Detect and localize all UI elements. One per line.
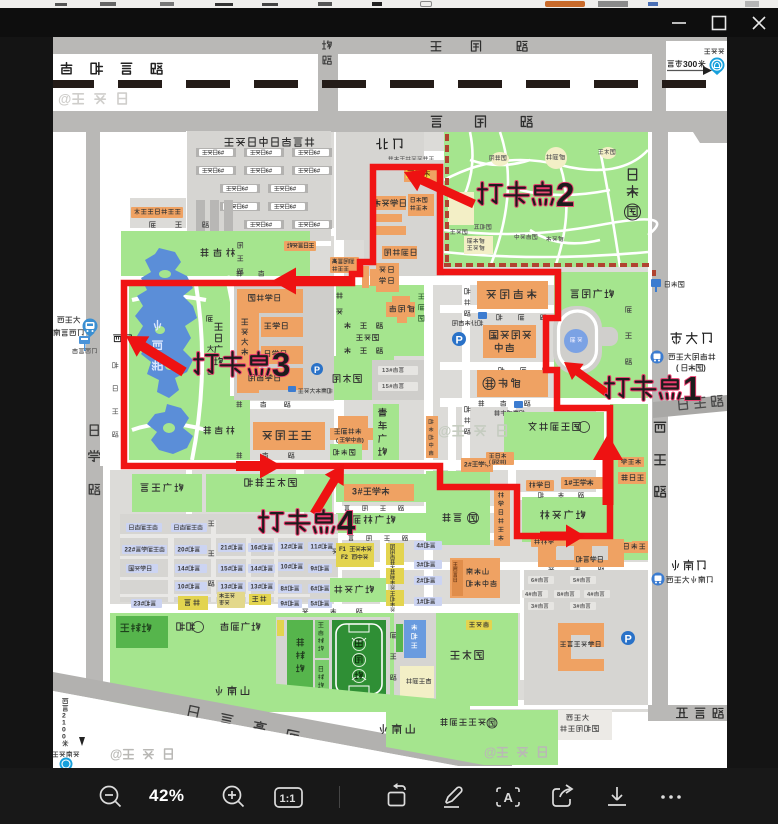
- svg-text:@: @: [58, 91, 71, 106]
- svg-text:2: 2: [497, 460, 500, 466]
- svg-text:@: @: [438, 423, 451, 438]
- svg-text:4: 4: [337, 504, 356, 541]
- svg-text:0: 0: [62, 727, 66, 734]
- svg-text:#: #: [420, 599, 424, 606]
- svg-text:3: 3: [272, 346, 290, 383]
- svg-text:#: #: [420, 543, 424, 550]
- svg-text:2: 2: [62, 713, 66, 720]
- svg-text:A: A: [504, 790, 514, 805]
- svg-text:#: #: [420, 578, 424, 585]
- svg-text:0: 0: [62, 734, 66, 741]
- svg-text:#: #: [314, 586, 318, 593]
- svg-text:1: 1: [62, 720, 66, 727]
- svg-text:P: P: [314, 365, 320, 375]
- svg-text:1: 1: [342, 546, 346, 553]
- svg-text:#: #: [314, 601, 318, 608]
- svg-text:#: #: [358, 486, 363, 496]
- svg-text:#: #: [314, 566, 318, 573]
- svg-text:3: 3: [352, 486, 357, 496]
- svg-text:P: P: [456, 335, 463, 347]
- svg-text:): ): [703, 364, 706, 373]
- svg-text:P: P: [625, 634, 632, 646]
- svg-text:300: 300: [683, 59, 697, 69]
- svg-text:#: #: [468, 461, 472, 468]
- svg-text:#: #: [284, 601, 288, 608]
- svg-text:(: (: [676, 364, 679, 373]
- svg-text:2: 2: [556, 176, 574, 213]
- svg-text:1: 1: [683, 370, 701, 407]
- svg-text:#: #: [420, 562, 424, 569]
- svg-text:#: #: [284, 586, 288, 593]
- svg-text:#: #: [568, 478, 572, 487]
- svg-text:@: @: [484, 746, 496, 760]
- svg-text:(: (: [336, 438, 338, 444]
- svg-text:2: 2: [344, 554, 348, 561]
- svg-text:): ): [362, 438, 364, 444]
- svg-text:1:1: 1:1: [280, 793, 296, 805]
- svg-text:@: @: [110, 748, 122, 762]
